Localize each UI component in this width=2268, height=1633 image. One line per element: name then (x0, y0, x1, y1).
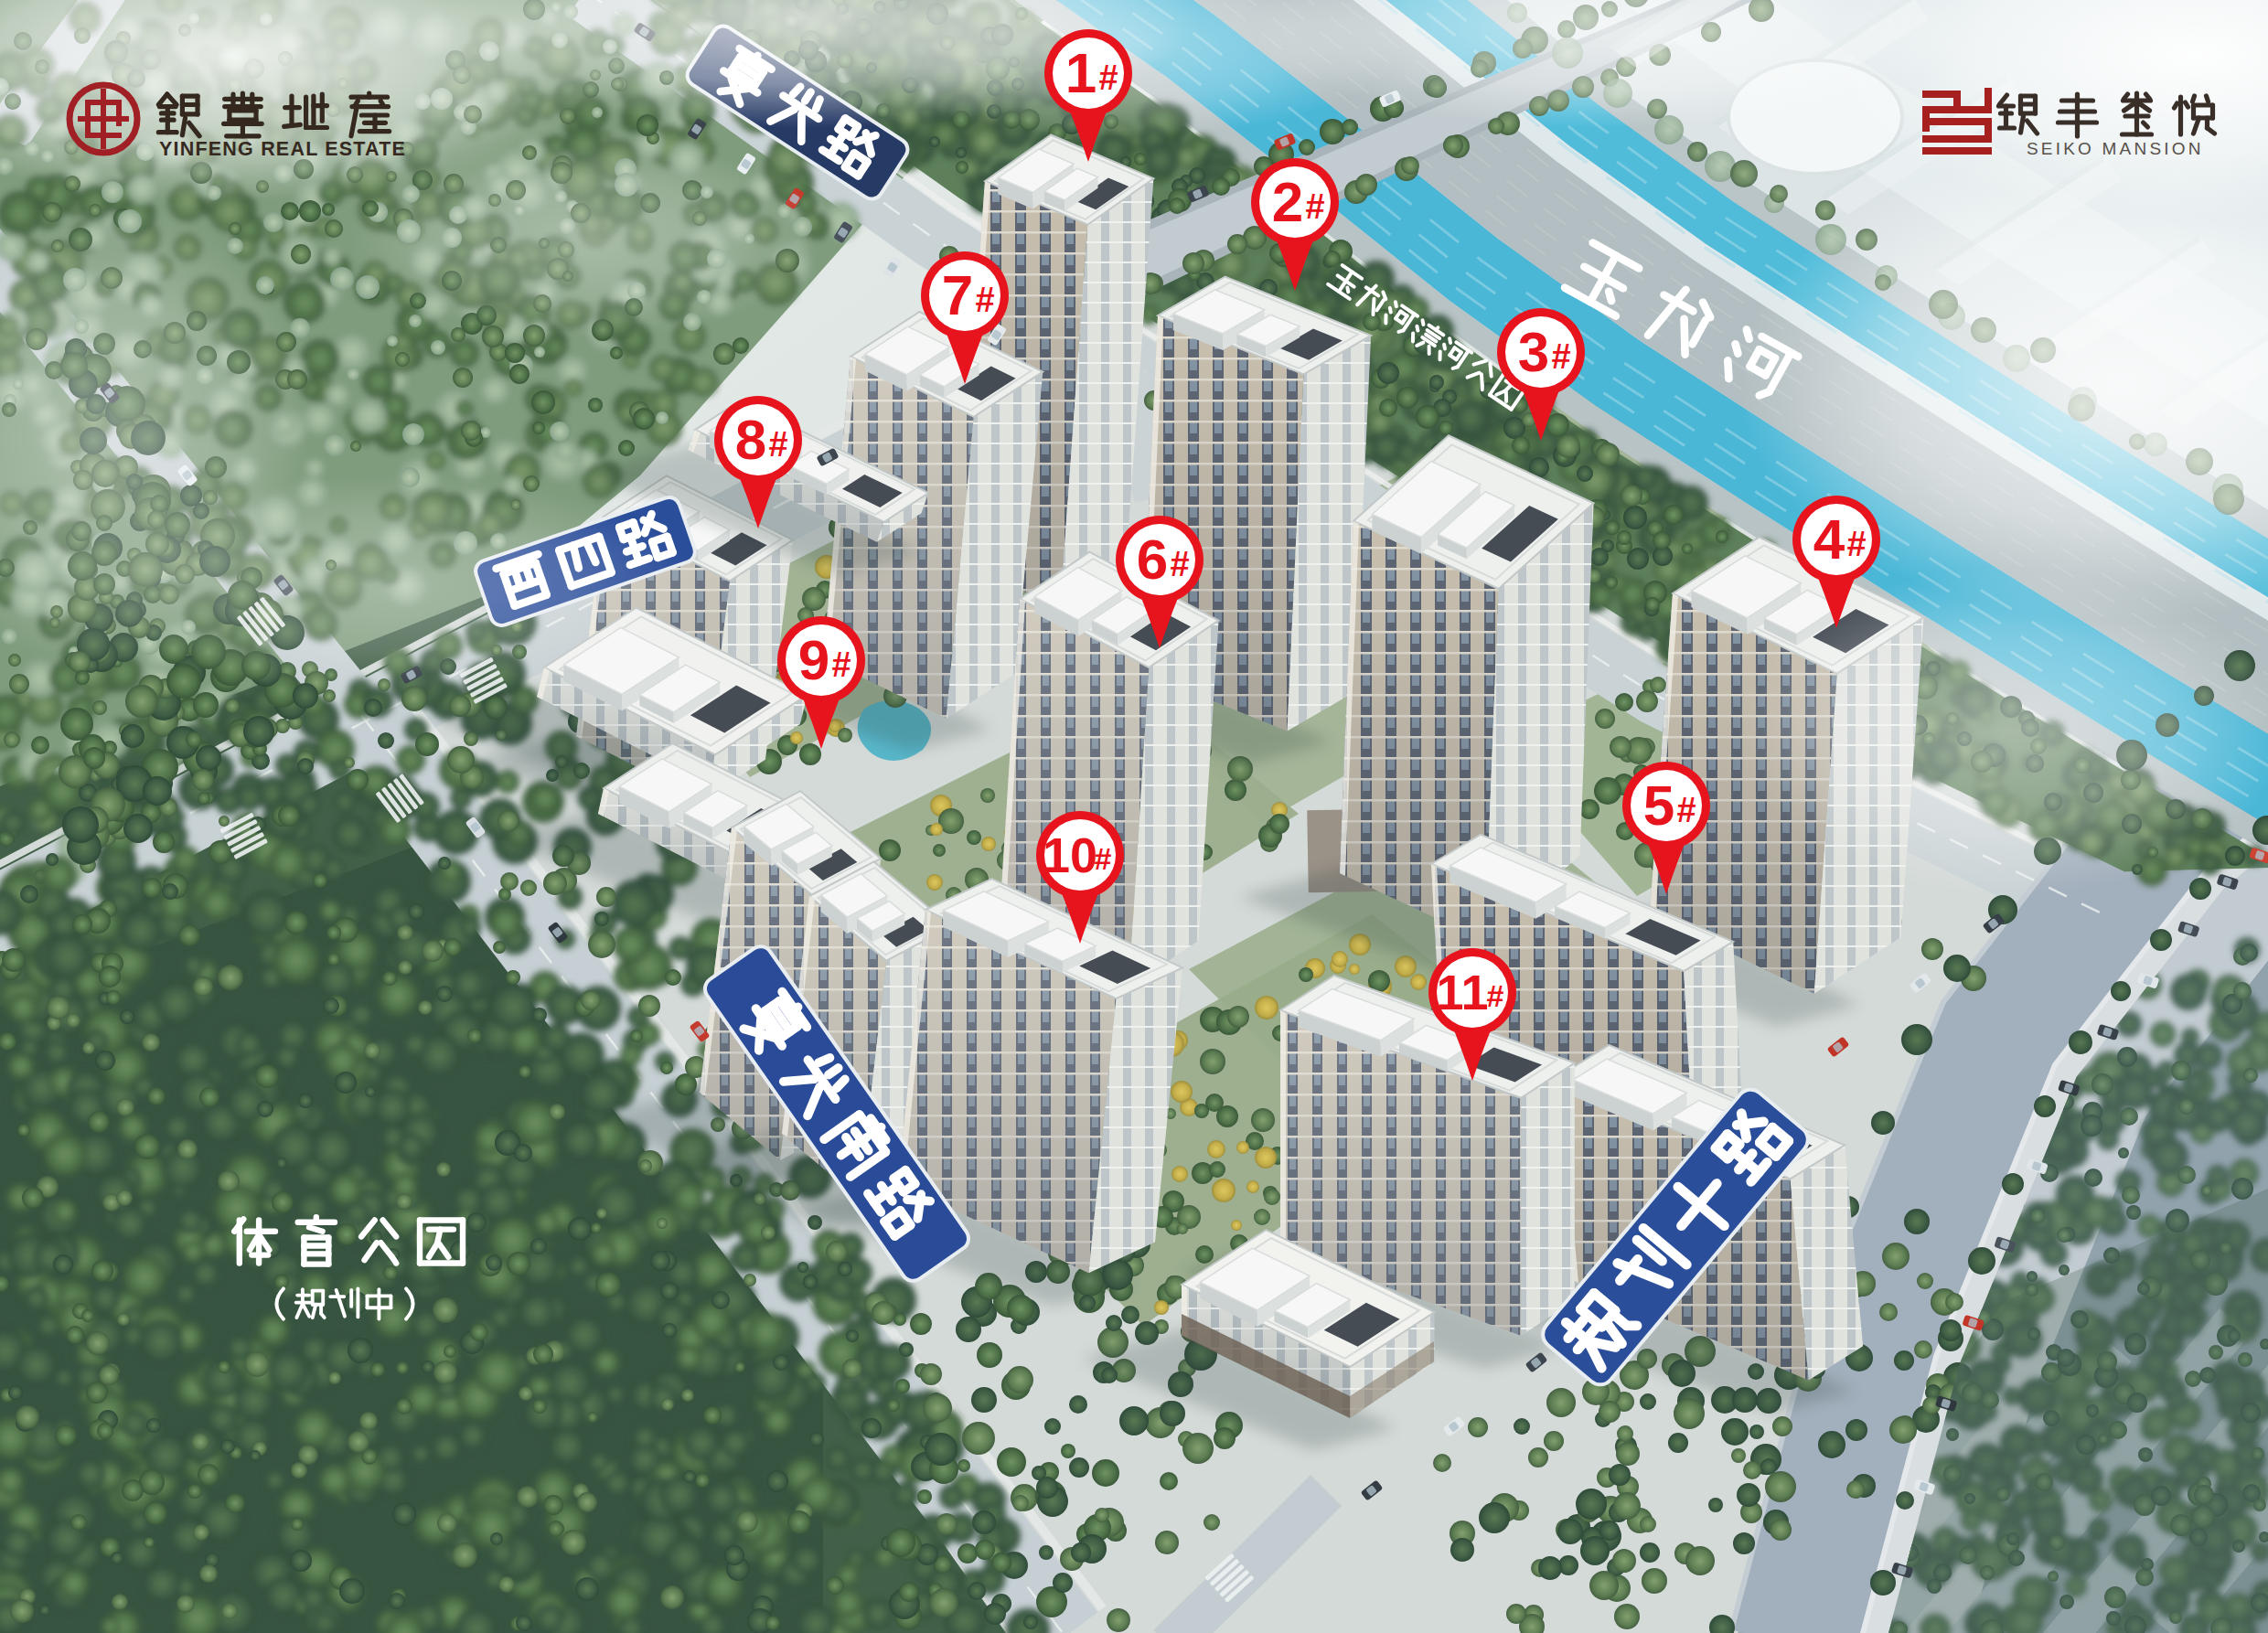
svg-text:#: # (1098, 59, 1118, 97)
svg-text:#: # (1846, 525, 1866, 563)
svg-text:2: 2 (1272, 170, 1303, 233)
svg-text:9: 9 (798, 628, 829, 691)
svg-text:#: # (1170, 545, 1189, 583)
svg-text:SEIKO MANSION: SEIKO MANSION (2027, 139, 2204, 158)
svg-text:#: # (768, 425, 787, 464)
svg-text:11: 11 (1436, 965, 1488, 1019)
svg-text:3: 3 (1518, 320, 1549, 383)
svg-text:#: # (1676, 791, 1696, 829)
svg-text:#: # (831, 646, 850, 684)
svg-text:5: 5 (1643, 774, 1674, 837)
svg-text:10: 10 (1043, 827, 1097, 882)
svg-text:YINFENG REAL ESTATE: YINFENG REAL ESTATE (159, 138, 406, 160)
svg-text:7: 7 (942, 263, 973, 326)
svg-text:#: # (1095, 841, 1112, 876)
svg-text:4: 4 (1813, 507, 1845, 571)
svg-text:1: 1 (1065, 41, 1097, 104)
svg-text:6: 6 (1137, 528, 1168, 591)
svg-text:#: # (1487, 978, 1504, 1013)
svg-text:8: 8 (735, 408, 766, 471)
svg-text:#: # (975, 281, 994, 319)
svg-text:#: # (1551, 337, 1570, 376)
svg-text:#: # (1305, 187, 1324, 226)
